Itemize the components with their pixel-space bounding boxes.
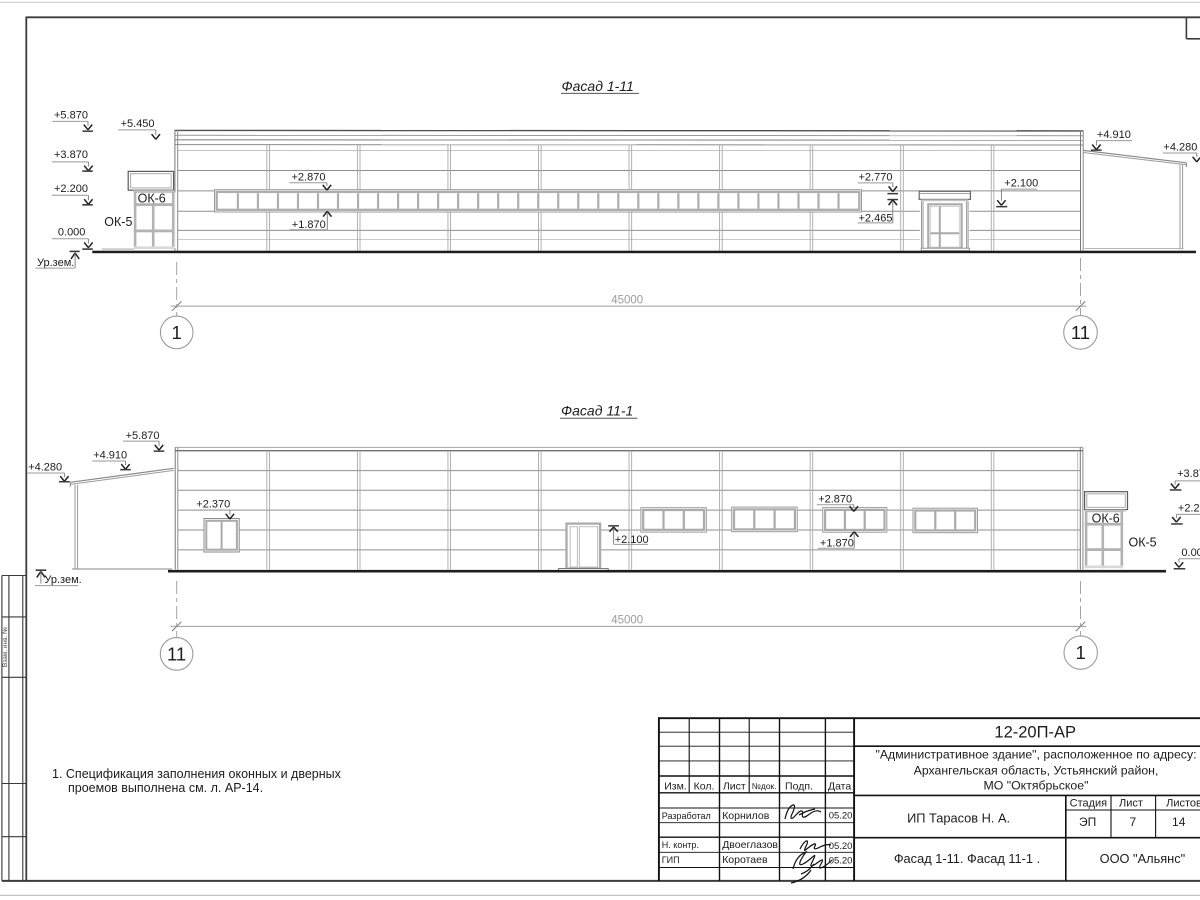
svg-text:Листов: Листов <box>1166 798 1200 810</box>
svg-text:0.00: 0.00 <box>1181 547 1200 559</box>
svg-text:11: 11 <box>167 643 186 664</box>
svg-text:ОК-6: ОК-6 <box>1092 511 1120 525</box>
svg-text:45000: 45000 <box>611 614 643 626</box>
svg-text:Н. контр.: Н. контр. <box>662 840 699 850</box>
svg-text:7: 7 <box>1129 815 1136 829</box>
svg-text:+2.100: +2.100 <box>1004 177 1038 189</box>
svg-text:+2.770: +2.770 <box>859 172 893 184</box>
svg-text:Коротаев: Коротаев <box>722 854 768 866</box>
svg-text:"Административное здание", рас: "Административное здание", расположенное… <box>875 747 1196 761</box>
svg-text:Дата: Дата <box>828 780 851 792</box>
svg-text:1: 1 <box>1076 642 1086 663</box>
svg-text:14: 14 <box>1172 815 1186 829</box>
svg-text:05.20: 05.20 <box>829 856 853 867</box>
svg-text:МО "Октябрьское": МО "Октябрьское" <box>984 779 1089 793</box>
svg-text:+4.910: +4.910 <box>1097 129 1131 141</box>
svg-text:ЭП: ЭП <box>1079 815 1096 829</box>
svg-text:+2.870: +2.870 <box>818 493 852 505</box>
svg-text:ОК-6: ОК-6 <box>138 192 166 206</box>
svg-text:Фасад 11-1: Фасад 11-1 <box>561 402 633 418</box>
svg-text:Стадия: Стадия <box>1070 798 1108 810</box>
svg-text:ОК-5: ОК-5 <box>1129 536 1157 550</box>
svg-text:+2.200: +2.200 <box>54 183 88 195</box>
svg-text:+4.910: +4.910 <box>93 449 127 461</box>
svg-text:45000: 45000 <box>611 294 643 306</box>
svg-text:1: 1 <box>172 322 182 343</box>
svg-text:Фасад 1-11. Фасад 11-1 .: Фасад 1-11. Фасад 11-1 . <box>894 851 1040 866</box>
svg-text:ООО "Альянс": ООО "Альянс" <box>1100 851 1186 866</box>
svg-text:+5.450: +5.450 <box>121 118 155 130</box>
svg-text:Разработал: Разработал <box>662 811 711 821</box>
svg-text:Лист: Лист <box>723 780 746 792</box>
svg-text:05.20: 05.20 <box>829 841 853 852</box>
svg-text:12-20П-АР: 12-20П-АР <box>994 724 1076 742</box>
svg-text:Взам. инв. №: Взам. инв. № <box>2 627 9 667</box>
svg-text:11: 11 <box>1071 322 1090 343</box>
svg-text:проемов выполнена см. л. АР-14: проемов выполнена см. л. АР-14. <box>68 781 263 795</box>
svg-text:+3.87: +3.87 <box>1177 468 1200 480</box>
svg-text:№док.: №док. <box>752 781 777 791</box>
svg-text:+1.870: +1.870 <box>292 219 326 231</box>
svg-text:ИП Тарасов Н. А.: ИП Тарасов Н. А. <box>907 810 1010 825</box>
svg-text:+3.870: +3.870 <box>54 149 88 161</box>
svg-text:+5.870: +5.870 <box>54 109 88 121</box>
svg-text:ОК-5: ОК-5 <box>104 215 132 229</box>
svg-text:+4.280: +4.280 <box>1163 142 1197 154</box>
svg-text:Корнилов: Корнилов <box>722 810 770 822</box>
svg-text:+2.100: +2.100 <box>615 534 649 546</box>
svg-text:Ур.зем.: Ур.зем. <box>37 257 74 269</box>
svg-text:1. Спецификация заполнения око: 1. Спецификация заполнения оконных и две… <box>52 767 342 781</box>
svg-text:+2.370: +2.370 <box>196 499 230 511</box>
svg-text:+5.870: +5.870 <box>126 430 160 442</box>
svg-text:Ур.зем.: Ур.зем. <box>44 574 81 586</box>
svg-text:Изм.: Изм. <box>664 780 687 792</box>
svg-text:+2.465: +2.465 <box>859 212 893 224</box>
svg-text:Лист: Лист <box>1119 798 1143 810</box>
svg-text:Архангельская область, Устьянс: Архангельская область, Устьянский район, <box>914 764 1159 778</box>
svg-text:+2.20: +2.20 <box>1178 503 1200 515</box>
svg-text:Двоеглазов: Двоеглазов <box>722 839 778 851</box>
svg-text:+2.870: +2.870 <box>292 171 326 183</box>
svg-text:Фасад 1-11: Фасад 1-11 <box>562 78 634 94</box>
svg-text:05.20: 05.20 <box>829 811 853 822</box>
svg-text:+1.870: +1.870 <box>820 537 854 549</box>
svg-text:ГИП: ГИП <box>662 855 680 865</box>
svg-text:Кол.: Кол. <box>694 780 715 792</box>
svg-text:Подп.: Подп. <box>785 780 813 792</box>
svg-text:0.000: 0.000 <box>58 227 86 239</box>
svg-text:+4.280: +4.280 <box>28 461 62 473</box>
